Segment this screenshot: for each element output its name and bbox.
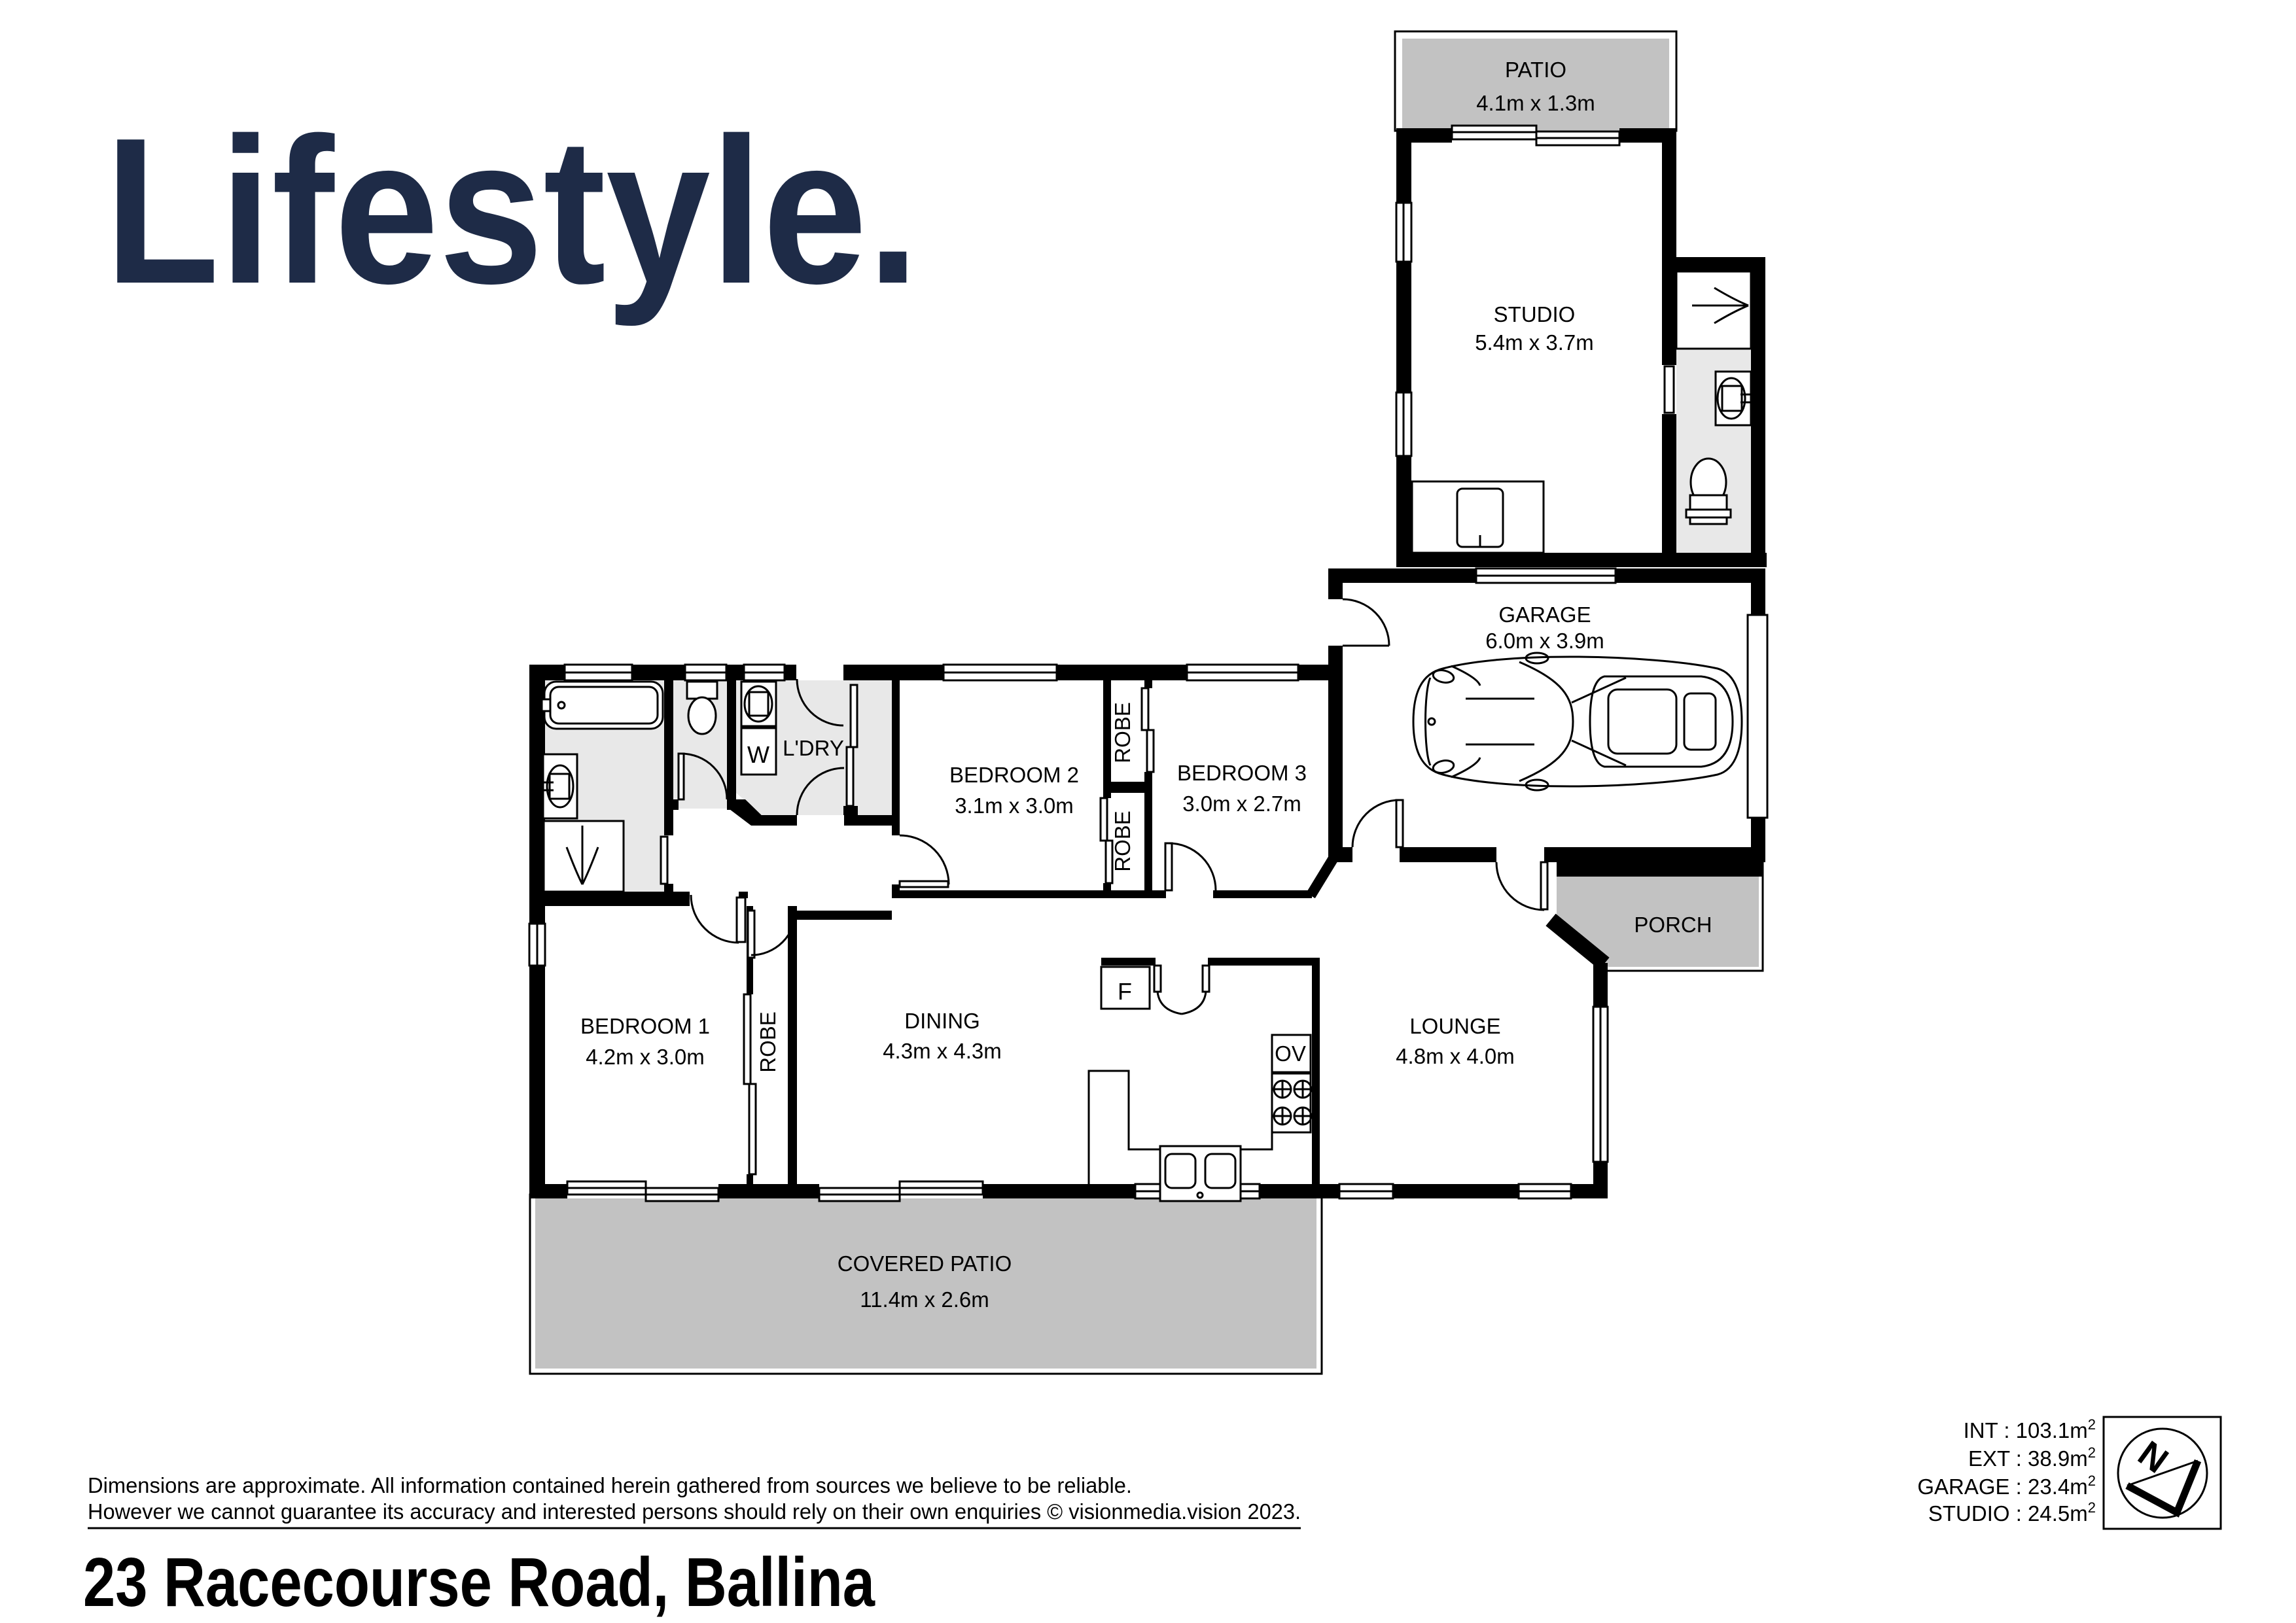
svg-text:EXT : 38.9m2: EXT : 38.9m2 [1968, 1444, 2096, 1471]
svg-text:STUDIO : 24.5m2: STUDIO : 24.5m2 [1928, 1499, 2096, 1526]
svg-text:GARAGE : 23.4m2: GARAGE : 23.4m2 [1917, 1473, 2096, 1499]
svg-text:L'DRY: L'DRY [783, 736, 844, 760]
svg-text:Dimensions are approximate. Al: Dimensions are approximate. All informat… [88, 1473, 1132, 1497]
svg-text:BEDROOM 3: BEDROOM 3 [1177, 761, 1307, 785]
svg-text:DINING: DINING [904, 1009, 980, 1033]
svg-text:4.3m x 4.3m: 4.3m x 4.3m [883, 1039, 1002, 1063]
svg-text:11.4m x 2.6m: 11.4m x 2.6m [860, 1287, 989, 1312]
svg-text:LOUNGE: LOUNGE [1409, 1014, 1500, 1038]
svg-text:GARAGE: GARAGE [1498, 602, 1591, 627]
svg-text:F: F [1118, 978, 1132, 1005]
svg-text:W: W [747, 741, 769, 768]
svg-text:COVERED PATIO: COVERED PATIO [838, 1251, 1012, 1276]
svg-text:6.0m x 3.9m: 6.0m x 3.9m [1485, 629, 1604, 653]
svg-text:BEDROOM 2: BEDROOM 2 [949, 763, 1079, 787]
svg-text:OV: OV [1275, 1041, 1306, 1066]
svg-text:STUDIO: STUDIO [1494, 302, 1576, 326]
svg-text:4.2m x 3.0m: 4.2m x 3.0m [586, 1045, 705, 1069]
svg-text:3.0m x 2.7m: 3.0m x 2.7m [1182, 792, 1301, 816]
svg-text:BEDROOM 1: BEDROOM 1 [580, 1014, 710, 1038]
svg-text:PATIO: PATIO [1505, 58, 1566, 82]
svg-text:ROBE: ROBE [1110, 702, 1135, 763]
svg-text:4.8m x 4.0m: 4.8m x 4.0m [1396, 1044, 1515, 1068]
svg-text:PORCH: PORCH [1634, 913, 1712, 937]
svg-text:4.1m x 1.3m: 4.1m x 1.3m [1476, 91, 1595, 115]
svg-text:Lifestyle.: Lifestyle. [105, 95, 919, 328]
svg-text:INT : 103.1m2: INT : 103.1m2 [1964, 1416, 2096, 1442]
svg-text:3.1m x 3.0m: 3.1m x 3.0m [955, 794, 1074, 818]
svg-text:5.4m x 3.7m: 5.4m x 3.7m [1475, 330, 1594, 355]
svg-text:However we cannot guarantee it: However we cannot guarantee its accuracy… [88, 1499, 1301, 1524]
svg-text:ROBE: ROBE [756, 1011, 780, 1073]
svg-text:ROBE: ROBE [1110, 811, 1135, 872]
svg-text:23 Racecourse Road, Ballina: 23 Racecourse Road, Ballina [83, 1544, 875, 1621]
